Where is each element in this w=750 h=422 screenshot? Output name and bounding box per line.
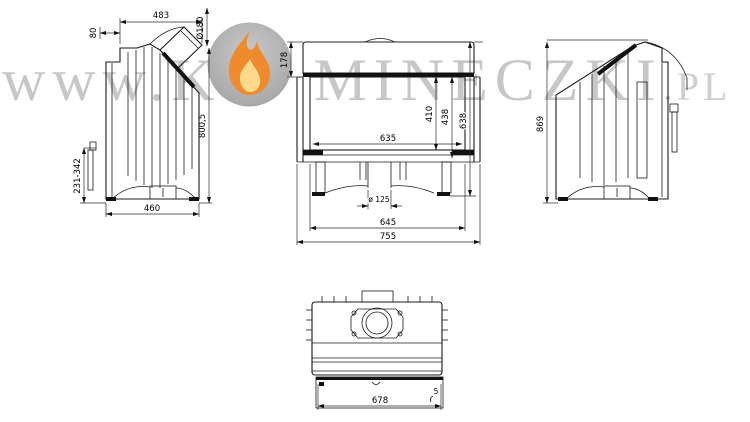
- dim-right-total-height: 869: [536, 116, 546, 132]
- left-view-dimensions: 483 Ø180 80 800,5 231-342 460: [73, 8, 212, 217]
- dim-front-glass-width: 635: [380, 134, 396, 144]
- dim-top-body-width: 678: [372, 396, 388, 406]
- top-view: 5 678: [306, 291, 448, 410]
- top-view-dimensions: 5 678: [318, 384, 441, 410]
- dim-front-inner-width: 645: [380, 218, 396, 228]
- dim-front-door-height: 438: [441, 109, 451, 125]
- front-view: 178 635 410 438 638 ø 125 645: [280, 39, 483, 246]
- dim-front-total-width: 755: [380, 232, 396, 242]
- top-view-body: [312, 302, 442, 375]
- dim-left-top-offset: 80: [89, 28, 99, 39]
- dim-left-top-width: 483: [153, 11, 169, 21]
- door-handle-left-view: [88, 150, 93, 190]
- left-side-view: 483 Ø180 80 800,5 231-342 460: [73, 8, 212, 217]
- dim-front-air-inlet: ø 125: [368, 195, 390, 204]
- cooling-ribs-left: [128, 47, 192, 188]
- dim-top-wall-thickness: 5: [434, 387, 439, 396]
- door-handle-right-view: [672, 112, 677, 152]
- dim-front-opening-height: 410: [425, 106, 435, 122]
- right-side-view: 869: [536, 40, 687, 203]
- drawing-canvas: 483 Ø180 80 800,5 231-342 460: [0, 0, 750, 422]
- cooling-ribs-right: [580, 50, 628, 185]
- dim-left-leg-range: 231-342: [73, 158, 83, 194]
- dim-left-depth: 460: [144, 204, 160, 214]
- dim-left-total-height: 800,5: [198, 114, 208, 138]
- dim-front-total-height: 638: [459, 113, 469, 129]
- flue-collar-circle: [362, 308, 392, 338]
- top-view-fin-ticks: [306, 296, 448, 340]
- dim-front-hood-height: 178: [280, 52, 290, 68]
- technical-drawing-page: www.K MINECZKI .PL: [0, 0, 750, 422]
- dim-left-flue-diameter: Ø180: [195, 17, 206, 40]
